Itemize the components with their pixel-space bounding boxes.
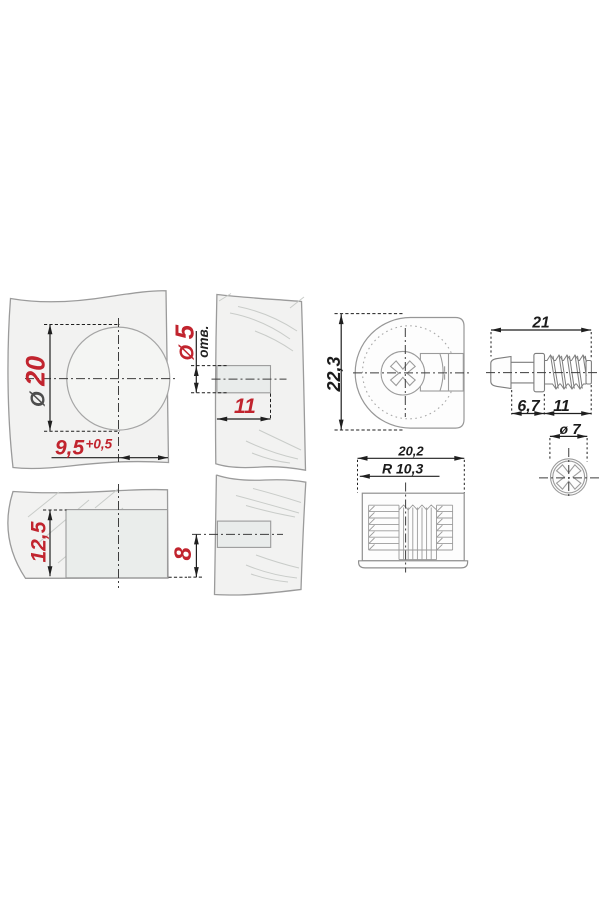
svg-text:отв.: отв. xyxy=(196,326,211,358)
svg-text:22,3: 22,3 xyxy=(324,356,344,392)
svg-text:12,5: 12,5 xyxy=(28,521,51,562)
svg-text:9,5: 9,5 xyxy=(55,437,85,460)
svg-text:21: 21 xyxy=(531,315,549,332)
svg-text:6,7: 6,7 xyxy=(517,398,540,415)
svg-text:20,2: 20,2 xyxy=(397,443,424,458)
svg-text:ø 7: ø 7 xyxy=(560,421,582,438)
svg-text:R 10,3: R 10,3 xyxy=(382,460,423,476)
svg-text:11: 11 xyxy=(234,395,256,418)
svg-text:8: 8 xyxy=(170,547,197,561)
svg-text:+0,5: +0,5 xyxy=(86,437,113,452)
svg-text:11: 11 xyxy=(553,398,570,415)
